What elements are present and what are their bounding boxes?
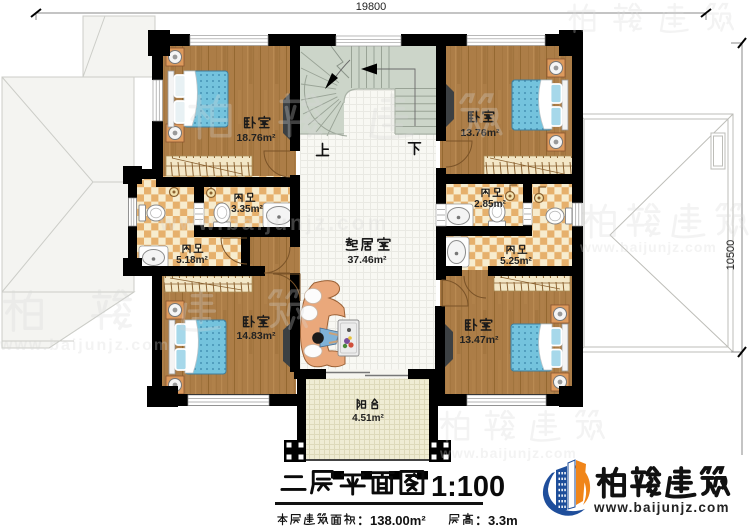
svg-text:www.baijunjz.com: www.baijunjz.com (593, 500, 730, 515)
svg-text:2.85m²: 2.85m² (474, 199, 506, 210)
svg-text:10500: 10500 (725, 240, 737, 271)
svg-text:5.18m²: 5.18m² (176, 255, 208, 266)
svg-text:1:100: 1:100 (431, 471, 505, 503)
svg-text:www.baijunjz.com: www.baijunjz.com (159, 212, 389, 235)
svg-text:19800: 19800 (356, 1, 387, 13)
svg-text:www.baijunjz.com: www.baijunjz.com (0, 337, 170, 354)
svg-text:5.25m²: 5.25m² (500, 256, 532, 267)
svg-text:14.83m²: 14.83m² (236, 330, 276, 342)
svg-text:18.76m²: 18.76m² (236, 132, 276, 144)
svg-text:13.47m²: 13.47m² (459, 334, 499, 346)
svg-text:：3.3m: ：3.3m (475, 513, 518, 528)
svg-text:www.baijunjz.com: www.baijunjz.com (439, 445, 577, 461)
svg-text:：138.00m²: ：138.00m² (357, 513, 426, 528)
svg-text:www.baijunjz.com: www.baijunjz.com (579, 239, 717, 255)
svg-text:4.51m²: 4.51m² (352, 413, 384, 424)
svg-text:37.46m²: 37.46m² (347, 254, 387, 266)
